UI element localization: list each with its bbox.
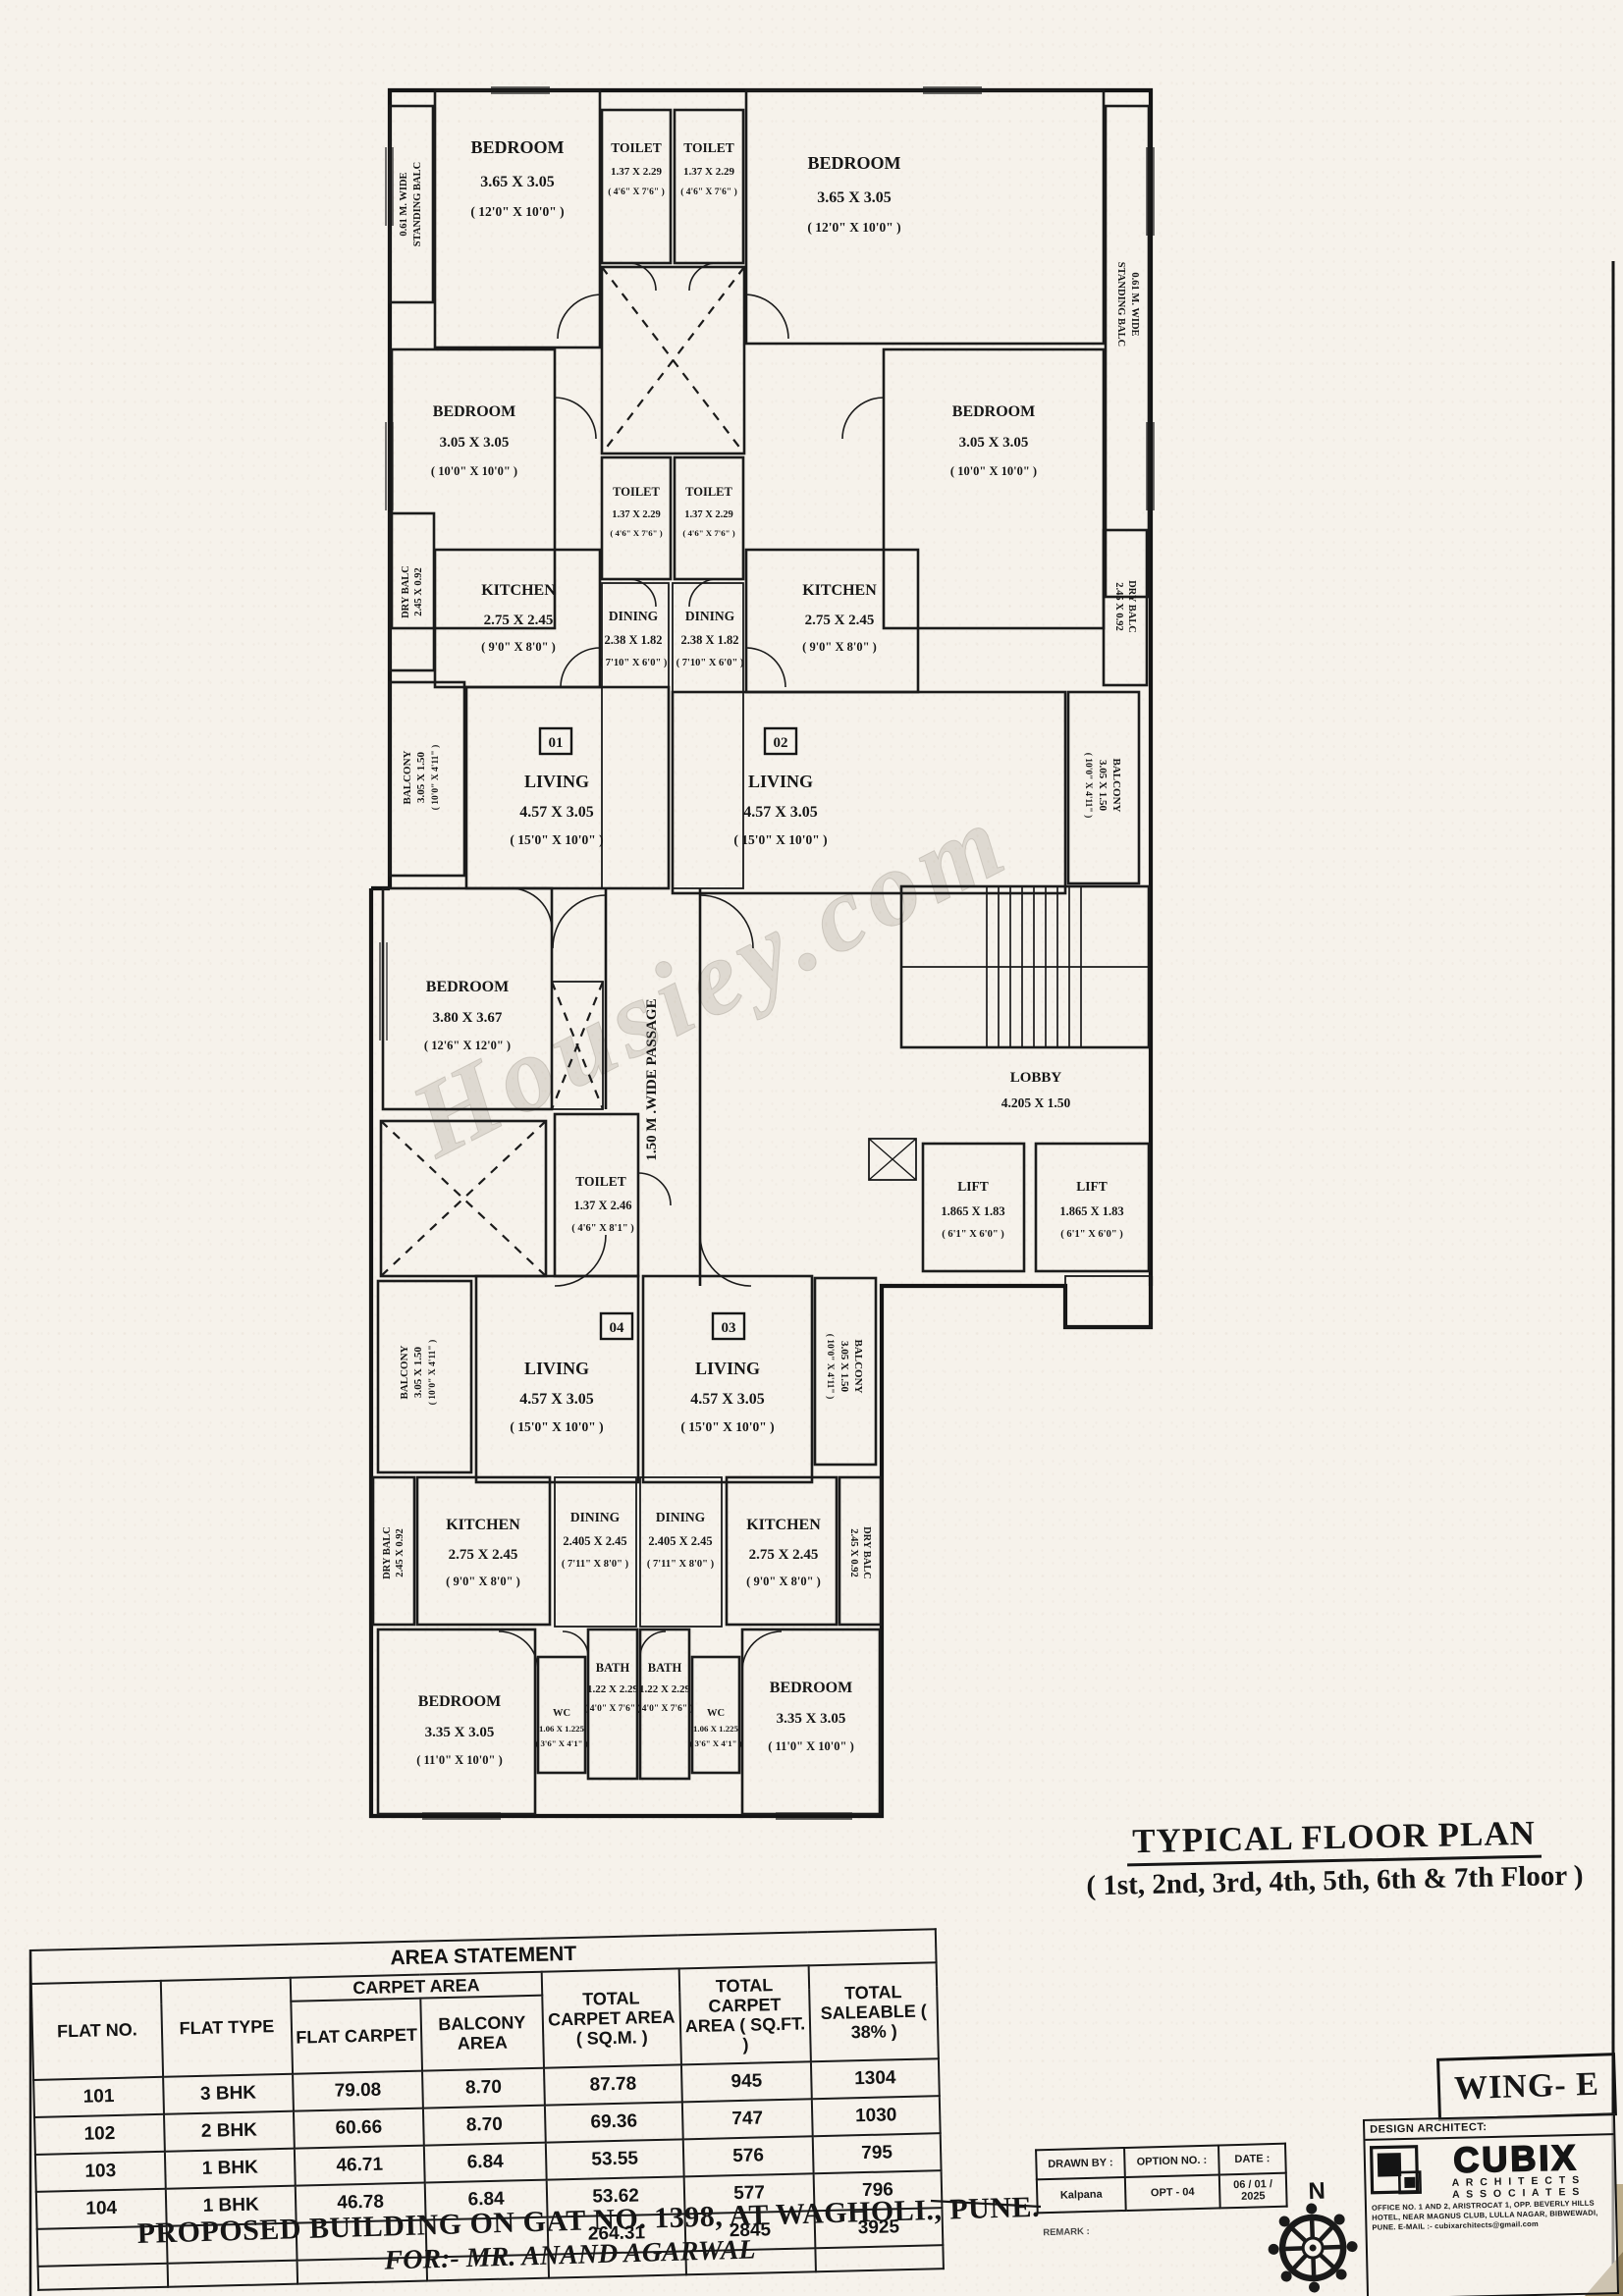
- svg-text:BEDROOM: BEDROOM: [470, 137, 564, 157]
- svg-text:( 7'11" X 8'0" ): ( 7'11" X 8'0" ): [562, 1559, 629, 1570]
- drawing-info-table: DRAWN BY : OPTION NO. : DATE : Kalpana O…: [1035, 2143, 1288, 2215]
- svg-text:TOILET: TOILET: [611, 140, 662, 155]
- svg-text:( 9'0" X 8'0" ): ( 9'0" X 8'0" ): [746, 1575, 821, 1588]
- label-balcony-right-top: BALCONY 3.05 X 1.50 ( 10'0" X 4'11" ): [1083, 753, 1122, 819]
- label-toilet-4: TOILET 1.37 X 2.29 ( 4'6" X 7'6" ): [682, 485, 734, 538]
- svg-text:1.37 X 2.29: 1.37 X 2.29: [612, 509, 661, 520]
- svg-text:LOBBY: LOBBY: [1010, 1070, 1062, 1086]
- label-bath-right: BATH 1.22 X 2.29 ( 4'0" X 7'6" ): [636, 1661, 693, 1714]
- svg-text:4.57 X 3.05: 4.57 X 3.05: [743, 804, 818, 821]
- label-dining-03: DINING 2.405 X 2.45 ( 7'11" X 8'0" ): [647, 1510, 715, 1570]
- svg-text:( 6'1" X 6'0" ): ( 6'1" X 6'0" ): [942, 1229, 1004, 1240]
- svg-text:( 10'0" X 4'11" ): ( 10'0" X 4'11" ): [427, 1340, 438, 1406]
- svg-text:LIVING: LIVING: [748, 772, 813, 791]
- svg-text:BEDROOM: BEDROOM: [418, 1693, 501, 1710]
- svg-text:2.405 X 2.45: 2.405 X 2.45: [563, 1534, 626, 1548]
- room-bedroom-1-left: [435, 90, 600, 347]
- cell-flat-carpet: 60.66: [294, 2109, 424, 2149]
- header-total-saleable: TOTAL SALEABLE ( 38% ): [809, 1962, 939, 2061]
- label-living-02: 02 LIVING 4.57 X 3.05 ( 15'0" X 10'0" ): [733, 728, 827, 847]
- svg-text:BALCONY: BALCONY: [399, 1345, 410, 1399]
- svg-text:( 4'0" X 7'6" ): ( 4'0" X 7'6" ): [636, 1703, 693, 1714]
- svg-text:BALCONY: BALCONY: [402, 750, 413, 804]
- label-wc-left: WC 1.06 X 1.225 ( 3'6" X 4'1" ): [535, 1708, 587, 1748]
- cell-balcony: 8.70: [423, 2106, 546, 2146]
- svg-text:KITCHEN: KITCHEN: [802, 582, 877, 599]
- svg-text:4.205 X 1.50: 4.205 X 1.50: [1001, 1095, 1071, 1110]
- cell-sqm: 53.55: [546, 2140, 684, 2180]
- svg-text:( 12'6" X 12'0" ): ( 12'6" X 12'0" ): [424, 1039, 511, 1052]
- svg-text:( 4'6" X 7'6" ): ( 4'6" X 7'6" ): [680, 187, 737, 197]
- label-living-04: 04 LIVING 4.57 X 3.05 ( 15'0" X 10'0" ): [510, 1313, 632, 1434]
- wing-label: WING- E: [1454, 2066, 1600, 2109]
- date-label: DATE :: [1218, 2144, 1286, 2175]
- svg-text:( 10'0" X 4'11" ): ( 10'0" X 4'11" ): [430, 745, 441, 811]
- header-total-sqft: TOTAL CARPET AREA ( SQ.FT. ): [679, 1965, 811, 2064]
- svg-text:2.75 X 2.45: 2.75 X 2.45: [749, 1547, 819, 1563]
- label-bedroom-1-left: BEDROOM 3.65 X 3.05 ( 12'0" X 10'0" ): [470, 137, 564, 219]
- svg-text:( 4'6" X 7'6" ): ( 4'6" X 7'6" ): [608, 187, 665, 197]
- svg-text:WC: WC: [707, 1708, 725, 1719]
- svg-text:( 3'6" X 4'1" ): ( 3'6" X 4'1" ): [689, 1738, 741, 1748]
- cell-sqft: 747: [682, 2099, 813, 2139]
- design-architect-block: DESIGN ARCHITECT: CUBIX A R C H I T E C …: [1363, 2113, 1619, 2296]
- svg-text:BATH: BATH: [596, 1661, 630, 1675]
- svg-text:DINING: DINING: [656, 1510, 706, 1524]
- label-toilet-1: TOILET 1.37 X 2.29 ( 4'6" X 7'6" ): [608, 140, 665, 197]
- svg-text:( 7'10" X 6'0" ): ( 7'10" X 6'0" ): [600, 658, 668, 668]
- header-flat-carpet: FLAT CARPET: [291, 1999, 422, 2074]
- wing-label-box: WING- E: [1436, 2053, 1617, 2121]
- svg-text:BATH: BATH: [648, 1661, 682, 1675]
- label-standing-balc-right: 0.61 M. WIDE STANDING BALC: [1115, 262, 1140, 347]
- svg-text:DRY BALC: DRY BALC: [382, 1526, 393, 1579]
- svg-text:( 6'1" X 6'0" ): ( 6'1" X 6'0" ): [1060, 1229, 1123, 1240]
- svg-text:LIVING: LIVING: [524, 1359, 589, 1378]
- svg-text:( 15'0" X 10'0" ): ( 15'0" X 10'0" ): [733, 832, 827, 847]
- svg-text:1.37 X 2.29: 1.37 X 2.29: [683, 166, 734, 178]
- svg-text:1.37 X 2.29: 1.37 X 2.29: [684, 509, 733, 520]
- svg-text:( 10'0" X 10'0" ): ( 10'0" X 10'0" ): [950, 464, 1037, 478]
- svg-text:1.06 X 1.225: 1.06 X 1.225: [693, 1724, 739, 1734]
- drawing-heading: TYPICAL FLOOR PLAN ( 1st, 2nd, 3rd, 4th,…: [1052, 1812, 1617, 1903]
- cell-balcony: 8.70: [422, 2068, 545, 2109]
- svg-text:3.65 X 3.05: 3.65 X 3.05: [817, 189, 892, 206]
- svg-text:0.61 M. WIDE: 0.61 M. WIDE: [1129, 272, 1140, 336]
- room-dining-04: [555, 1477, 636, 1627]
- cell-flat-no: 103: [35, 2152, 166, 2192]
- label-lift-1: LIFT 1.865 X 1.83 ( 6'1" X 6'0" ): [941, 1179, 1004, 1240]
- cell-sqft: 945: [681, 2061, 812, 2102]
- svg-text:3.05 X 3.05: 3.05 X 3.05: [959, 435, 1029, 451]
- svg-text:2.38 X 1.82: 2.38 X 1.82: [604, 633, 662, 647]
- svg-text:2.38 X 1.82: 2.38 X 1.82: [680, 633, 738, 647]
- label-bedroom-3: BEDROOM 3.80 X 3.67 ( 12'6" X 12'0" ): [424, 979, 511, 1052]
- svg-text:TOILET: TOILET: [575, 1174, 626, 1189]
- svg-text:DRY BALC: DRY BALC: [401, 565, 411, 618]
- svg-text:( 12'0" X 10'0" ): ( 12'0" X 10'0" ): [470, 204, 564, 219]
- svg-text:2.45 X 0.92: 2.45 X 0.92: [395, 1528, 406, 1577]
- svg-text:3.35 X 3.05: 3.35 X 3.05: [425, 1725, 495, 1740]
- hatch-below-lift: [1065, 1276, 1151, 1327]
- hatched-balconies-bottom: [373, 1278, 881, 1625]
- svg-text:( 10'0" X 4'11" ): ( 10'0" X 4'11" ): [1083, 753, 1094, 819]
- svg-text:2.45 X 0.92: 2.45 X 0.92: [1113, 582, 1124, 631]
- svg-text:KITCHEN: KITCHEN: [446, 1517, 520, 1533]
- svg-text:DRY BALC: DRY BALC: [1126, 580, 1137, 633]
- cubix-logo-icon: [1370, 2145, 1426, 2201]
- label-dry-balc-left: DRY BALC 2.45 X 0.92: [401, 565, 424, 618]
- svg-text:3.80 X 3.67: 3.80 X 3.67: [433, 1010, 503, 1026]
- cell-flat-type: 1 BHK: [165, 2149, 296, 2189]
- svg-text:WC: WC: [553, 1708, 570, 1719]
- svg-text:LIFT: LIFT: [957, 1179, 989, 1194]
- scanned-floor-plan-page: Housiey.com: [0, 0, 1623, 2296]
- label-dry-balc-right: DRY BALC 2.45 X 0.92: [1113, 580, 1137, 633]
- svg-text:3.05 X 1.50: 3.05 X 1.50: [839, 1341, 850, 1392]
- svg-text:BALCONY: BALCONY: [1110, 758, 1122, 812]
- svg-text:( 9'0" X 8'0" ): ( 9'0" X 8'0" ): [446, 1575, 520, 1588]
- option-label: OPTION NO. :: [1124, 2145, 1219, 2177]
- svg-text:( 15'0" X 10'0" ): ( 15'0" X 10'0" ): [510, 832, 603, 847]
- architect-address: OFFICE NO. 1 AND 2, ARISTROCAT 1, OPP. B…: [1367, 2196, 1616, 2234]
- drawn-by-value: Kalpana: [1037, 2177, 1126, 2213]
- option-value: OPT - 04: [1125, 2174, 1220, 2211]
- svg-text:BEDROOM: BEDROOM: [952, 403, 1035, 420]
- svg-text:3.05 X 3.05: 3.05 X 3.05: [440, 435, 510, 451]
- svg-text:( 3'6" X 4'1" ): ( 3'6" X 4'1" ): [535, 1738, 587, 1748]
- cell-saleable: 795: [813, 2133, 942, 2173]
- svg-text:1.865 X 1.83: 1.865 X 1.83: [1059, 1204, 1123, 1218]
- svg-text:03: 03: [722, 1320, 736, 1336]
- label-dining-left-top: DINING 2.38 X 1.82 ( 7'10" X 6'0" ): [600, 609, 668, 668]
- svg-text:LIFT: LIFT: [1076, 1179, 1108, 1194]
- svg-text:( 4'6" X 7'6" ): ( 4'6" X 7'6" ): [682, 528, 734, 538]
- svg-text:3.05 X 1.50: 3.05 X 1.50: [415, 752, 427, 803]
- svg-text:3.35 X 3.05: 3.35 X 3.05: [777, 1711, 846, 1727]
- room-living-03: [643, 1276, 812, 1482]
- room-dining-left: [602, 583, 669, 888]
- cell-flat-no: 102: [34, 2114, 165, 2155]
- cell-sqm: 69.36: [545, 2103, 683, 2143]
- svg-text:STANDING BALC: STANDING BALC: [412, 162, 423, 246]
- svg-text:TOILET: TOILET: [685, 485, 732, 499]
- hatched-balconies-top: [390, 106, 1149, 883]
- svg-text:2.45 X 0.92: 2.45 X 0.92: [848, 1528, 859, 1577]
- cell-flat-carpet: 79.08: [293, 2071, 423, 2111]
- svg-text:( 7'10" X 6'0" ): ( 7'10" X 6'0" ): [676, 658, 744, 668]
- room-bedroom-2-right: [884, 349, 1104, 628]
- header-flat-no: FLAT NO.: [31, 1981, 163, 2080]
- svg-text:DINING: DINING: [609, 609, 659, 623]
- svg-text:KITCHEN: KITCHEN: [746, 1517, 821, 1533]
- svg-text:2.75 X 2.45: 2.75 X 2.45: [484, 613, 554, 628]
- label-living-03: 03 LIVING 4.57 X 3.05 ( 15'0" X 10'0" ): [680, 1313, 774, 1434]
- cell-sqm: 87.78: [544, 2065, 682, 2106]
- svg-text:02: 02: [774, 735, 788, 751]
- label-dry-balc-right-bottom: DRY BALC 2.45 X 0.92: [848, 1526, 872, 1579]
- room-bedroom-1-right: [746, 90, 1104, 344]
- svg-text:BEDROOM: BEDROOM: [433, 403, 515, 420]
- svg-text:TOILET: TOILET: [613, 485, 660, 499]
- svg-text:01: 01: [549, 735, 564, 751]
- remark-label: REMARK :: [1043, 2221, 1288, 2239]
- label-bedroom-4-left: BEDROOM 3.35 X 3.05 ( 11'0" X 10'0" ): [416, 1693, 503, 1767]
- label-balcony-left-top: BALCONY 3.05 X 1.50 ( 10'0" X 4'11" ): [402, 745, 441, 811]
- svg-text:1.37 X 2.29: 1.37 X 2.29: [611, 166, 662, 178]
- page-title: TYPICAL FLOOR PLAN: [1126, 1814, 1542, 1867]
- svg-text:( 11'0" X 10'0" ): ( 11'0" X 10'0" ): [768, 1739, 854, 1753]
- svg-text:1.865 X 1.83: 1.865 X 1.83: [941, 1204, 1004, 1218]
- svg-text:3.05 X 1.50: 3.05 X 1.50: [412, 1347, 424, 1398]
- label-kitchen-right: KITCHEN 2.75 X 2.45 ( 9'0" X 8'0" ): [802, 582, 877, 654]
- svg-text:( 9'0" X 8'0" ): ( 9'0" X 8'0" ): [481, 640, 556, 654]
- svg-text:( 10'0" X 4'11" ): ( 10'0" X 4'11" ): [825, 1334, 836, 1400]
- label-standing-balc-left: 0.61 M. WIDE STANDING BALC: [399, 162, 423, 246]
- svg-text:BEDROOM: BEDROOM: [426, 979, 509, 995]
- label-toilet-2: TOILET 1.37 X 2.29 ( 4'6" X 7'6" ): [680, 140, 737, 197]
- svg-text:TOILET: TOILET: [683, 140, 734, 155]
- svg-text:BEDROOM: BEDROOM: [770, 1680, 852, 1696]
- svg-text:BALCONY: BALCONY: [852, 1339, 864, 1393]
- svg-text:( 15'0" X 10'0" ): ( 15'0" X 10'0" ): [510, 1419, 603, 1434]
- svg-text:LIVING: LIVING: [695, 1359, 760, 1378]
- cell-flat-type: 3 BHK: [163, 2074, 294, 2114]
- north-label: N: [1308, 2178, 1325, 2206]
- label-bedroom-2-right: BEDROOM 3.05 X 3.05 ( 10'0" X 10'0" ): [950, 403, 1037, 478]
- svg-text:( 11'0" X 10'0" ): ( 11'0" X 10'0" ): [416, 1753, 503, 1767]
- svg-text:2.75 X 2.45: 2.75 X 2.45: [449, 1547, 518, 1563]
- svg-text:( 4'6" X 8'1" ): ( 4'6" X 8'1" ): [571, 1223, 634, 1234]
- svg-text:1.22 X 2.29: 1.22 X 2.29: [587, 1683, 638, 1695]
- svg-text:DINING: DINING: [570, 1510, 621, 1524]
- label-dry-balc-left-bottom: DRY BALC 2.45 X 0.92: [382, 1526, 406, 1579]
- svg-text:( 9'0" X 8'0" ): ( 9'0" X 8'0" ): [802, 640, 877, 654]
- svg-text:2.75 X 2.45: 2.75 X 2.45: [805, 613, 875, 628]
- header-total-sqm: TOTAL CARPET AREA ( SQ.M. ): [542, 1968, 681, 2067]
- room-toilet-2: [675, 110, 743, 263]
- svg-text:4.57 X 3.05: 4.57 X 3.05: [690, 1391, 765, 1408]
- room-dining-right: [673, 583, 743, 888]
- svg-text:2.45 X 0.92: 2.45 X 0.92: [413, 567, 424, 616]
- svg-text:DRY BALC: DRY BALC: [861, 1526, 872, 1579]
- label-bedroom-2-left: BEDROOM 3.05 X 3.05 ( 10'0" X 10'0" ): [431, 403, 517, 478]
- svg-text:4.57 X 3.05: 4.57 X 3.05: [519, 1391, 594, 1408]
- label-lobby: LOBBY 4.205 X 1.50: [1001, 1070, 1071, 1110]
- header-balcony-area: BALCONY AREA: [420, 1996, 544, 2071]
- cell-saleable: 1030: [812, 2096, 941, 2136]
- svg-text:1.50 M .WIDE PASSAGE: 1.50 M .WIDE PASSAGE: [644, 998, 660, 1160]
- svg-text:4.57 X 3.05: 4.57 X 3.05: [519, 804, 594, 821]
- label-living-01: 01 LIVING 4.57 X 3.05 ( 15'0" X 10'0" ): [510, 728, 603, 847]
- label-lift-2: LIFT 1.865 X 1.83 ( 6'1" X 6'0" ): [1059, 1179, 1123, 1240]
- svg-text:( 7'11" X 8'0" ): ( 7'11" X 8'0" ): [647, 1559, 715, 1570]
- label-kitchen-04: KITCHEN 2.75 X 2.45 ( 9'0" X 8'0" ): [446, 1517, 520, 1588]
- svg-text:2.405 X 2.45: 2.405 X 2.45: [648, 1534, 712, 1548]
- label-dining-04: DINING 2.405 X 2.45 ( 7'11" X 8'0" ): [562, 1510, 629, 1570]
- room-toilet-mid: [555, 1114, 638, 1276]
- svg-text:BEDROOM: BEDROOM: [807, 153, 900, 173]
- drawing-info-block: DRAWN BY : OPTION NO. : DATE : Kalpana O…: [1035, 2143, 1290, 2296]
- svg-text:( 10'0" X 10'0" ): ( 10'0" X 10'0" ): [431, 464, 517, 478]
- svg-text:0.61 M. WIDE: 0.61 M. WIDE: [399, 172, 409, 236]
- svg-text:04: 04: [610, 1320, 625, 1336]
- svg-text:3.05 X 1.50: 3.05 X 1.50: [1097, 760, 1109, 811]
- svg-text:1.06 X 1.225: 1.06 X 1.225: [539, 1724, 585, 1734]
- cell-saleable: 1304: [811, 2058, 940, 2099]
- date-value: 06 / 01 / 2025: [1219, 2173, 1287, 2209]
- cell-flat-no: 101: [33, 2077, 164, 2117]
- svg-text:3.65 X 3.05: 3.65 X 3.05: [480, 174, 555, 190]
- room-bedroom-4-left: [378, 1629, 535, 1814]
- svg-text:( 4'6" X 7'6" ): ( 4'6" X 7'6" ): [610, 528, 662, 538]
- label-balcony-right-bottom: BALCONY 3.05 X 1.50 ( 10'0" X 4'11" ): [825, 1334, 864, 1400]
- cell-flat-type: 2 BHK: [164, 2111, 295, 2152]
- cell-balcony: 6.84: [424, 2143, 547, 2183]
- label-toilet-mid: TOILET 1.37 X 2.46 ( 4'6" X 8'1" ): [571, 1174, 634, 1234]
- svg-text:( 15'0" X 10'0" ): ( 15'0" X 10'0" ): [680, 1419, 774, 1434]
- drawn-by-label: DRAWN BY :: [1036, 2148, 1125, 2179]
- label-balcony-left-bottom: BALCONY 3.05 X 1.50 ( 10'0" X 4'11" ): [399, 1340, 438, 1406]
- label-dining-right-top: DINING 2.38 X 1.82 ( 7'10" X 6'0" ): [676, 609, 744, 668]
- room-living-04: [476, 1276, 638, 1482]
- label-kitchen-left: KITCHEN 2.75 X 2.45 ( 9'0" X 8'0" ): [481, 582, 556, 654]
- label-passage: 1.50 M .WIDE PASSAGE: [644, 998, 660, 1160]
- label-kitchen-03: KITCHEN 2.75 X 2.45 ( 9'0" X 8'0" ): [746, 1517, 821, 1588]
- svg-text:DINING: DINING: [685, 609, 735, 623]
- cubix-logo-text: CUBIX A R C H I T E C T S A S S O C I A …: [1425, 2139, 1608, 2200]
- svg-text:STANDING BALC: STANDING BALC: [1115, 262, 1126, 347]
- label-bedroom-1-right: BEDROOM 3.65 X 3.05 ( 12'0" X 10'0" ): [807, 153, 900, 235]
- label-bath-left: BATH 1.22 X 2.29 ( 4'0" X 7'6" ): [584, 1661, 641, 1714]
- cell-flat-carpet: 46.71: [295, 2146, 425, 2186]
- label-bedroom-4-right: BEDROOM 3.35 X 3.05 ( 11'0" X 10'0" ): [768, 1680, 854, 1753]
- svg-text:KITCHEN: KITCHEN: [481, 582, 556, 599]
- room-dining-03: [640, 1477, 722, 1627]
- svg-text:LIVING: LIVING: [524, 772, 589, 791]
- svg-text:( 4'0" X 7'6" ): ( 4'0" X 7'6" ): [584, 1703, 641, 1714]
- room-toilet-1: [602, 110, 671, 263]
- svg-text:1.37 X 2.46: 1.37 X 2.46: [573, 1199, 631, 1212]
- cell-sqft: 576: [683, 2136, 814, 2176]
- header-flat-type: FLAT TYPE: [161, 1978, 293, 2077]
- svg-text:1.22 X 2.29: 1.22 X 2.29: [639, 1683, 690, 1695]
- svg-text:( 12'0" X 10'0" ): ( 12'0" X 10'0" ): [807, 220, 900, 235]
- label-wc-right: WC 1.06 X 1.225 ( 3'6" X 4'1" ): [689, 1708, 741, 1748]
- label-toilet-3: TOILET 1.37 X 2.29 ( 4'6" X 7'6" ): [610, 485, 662, 538]
